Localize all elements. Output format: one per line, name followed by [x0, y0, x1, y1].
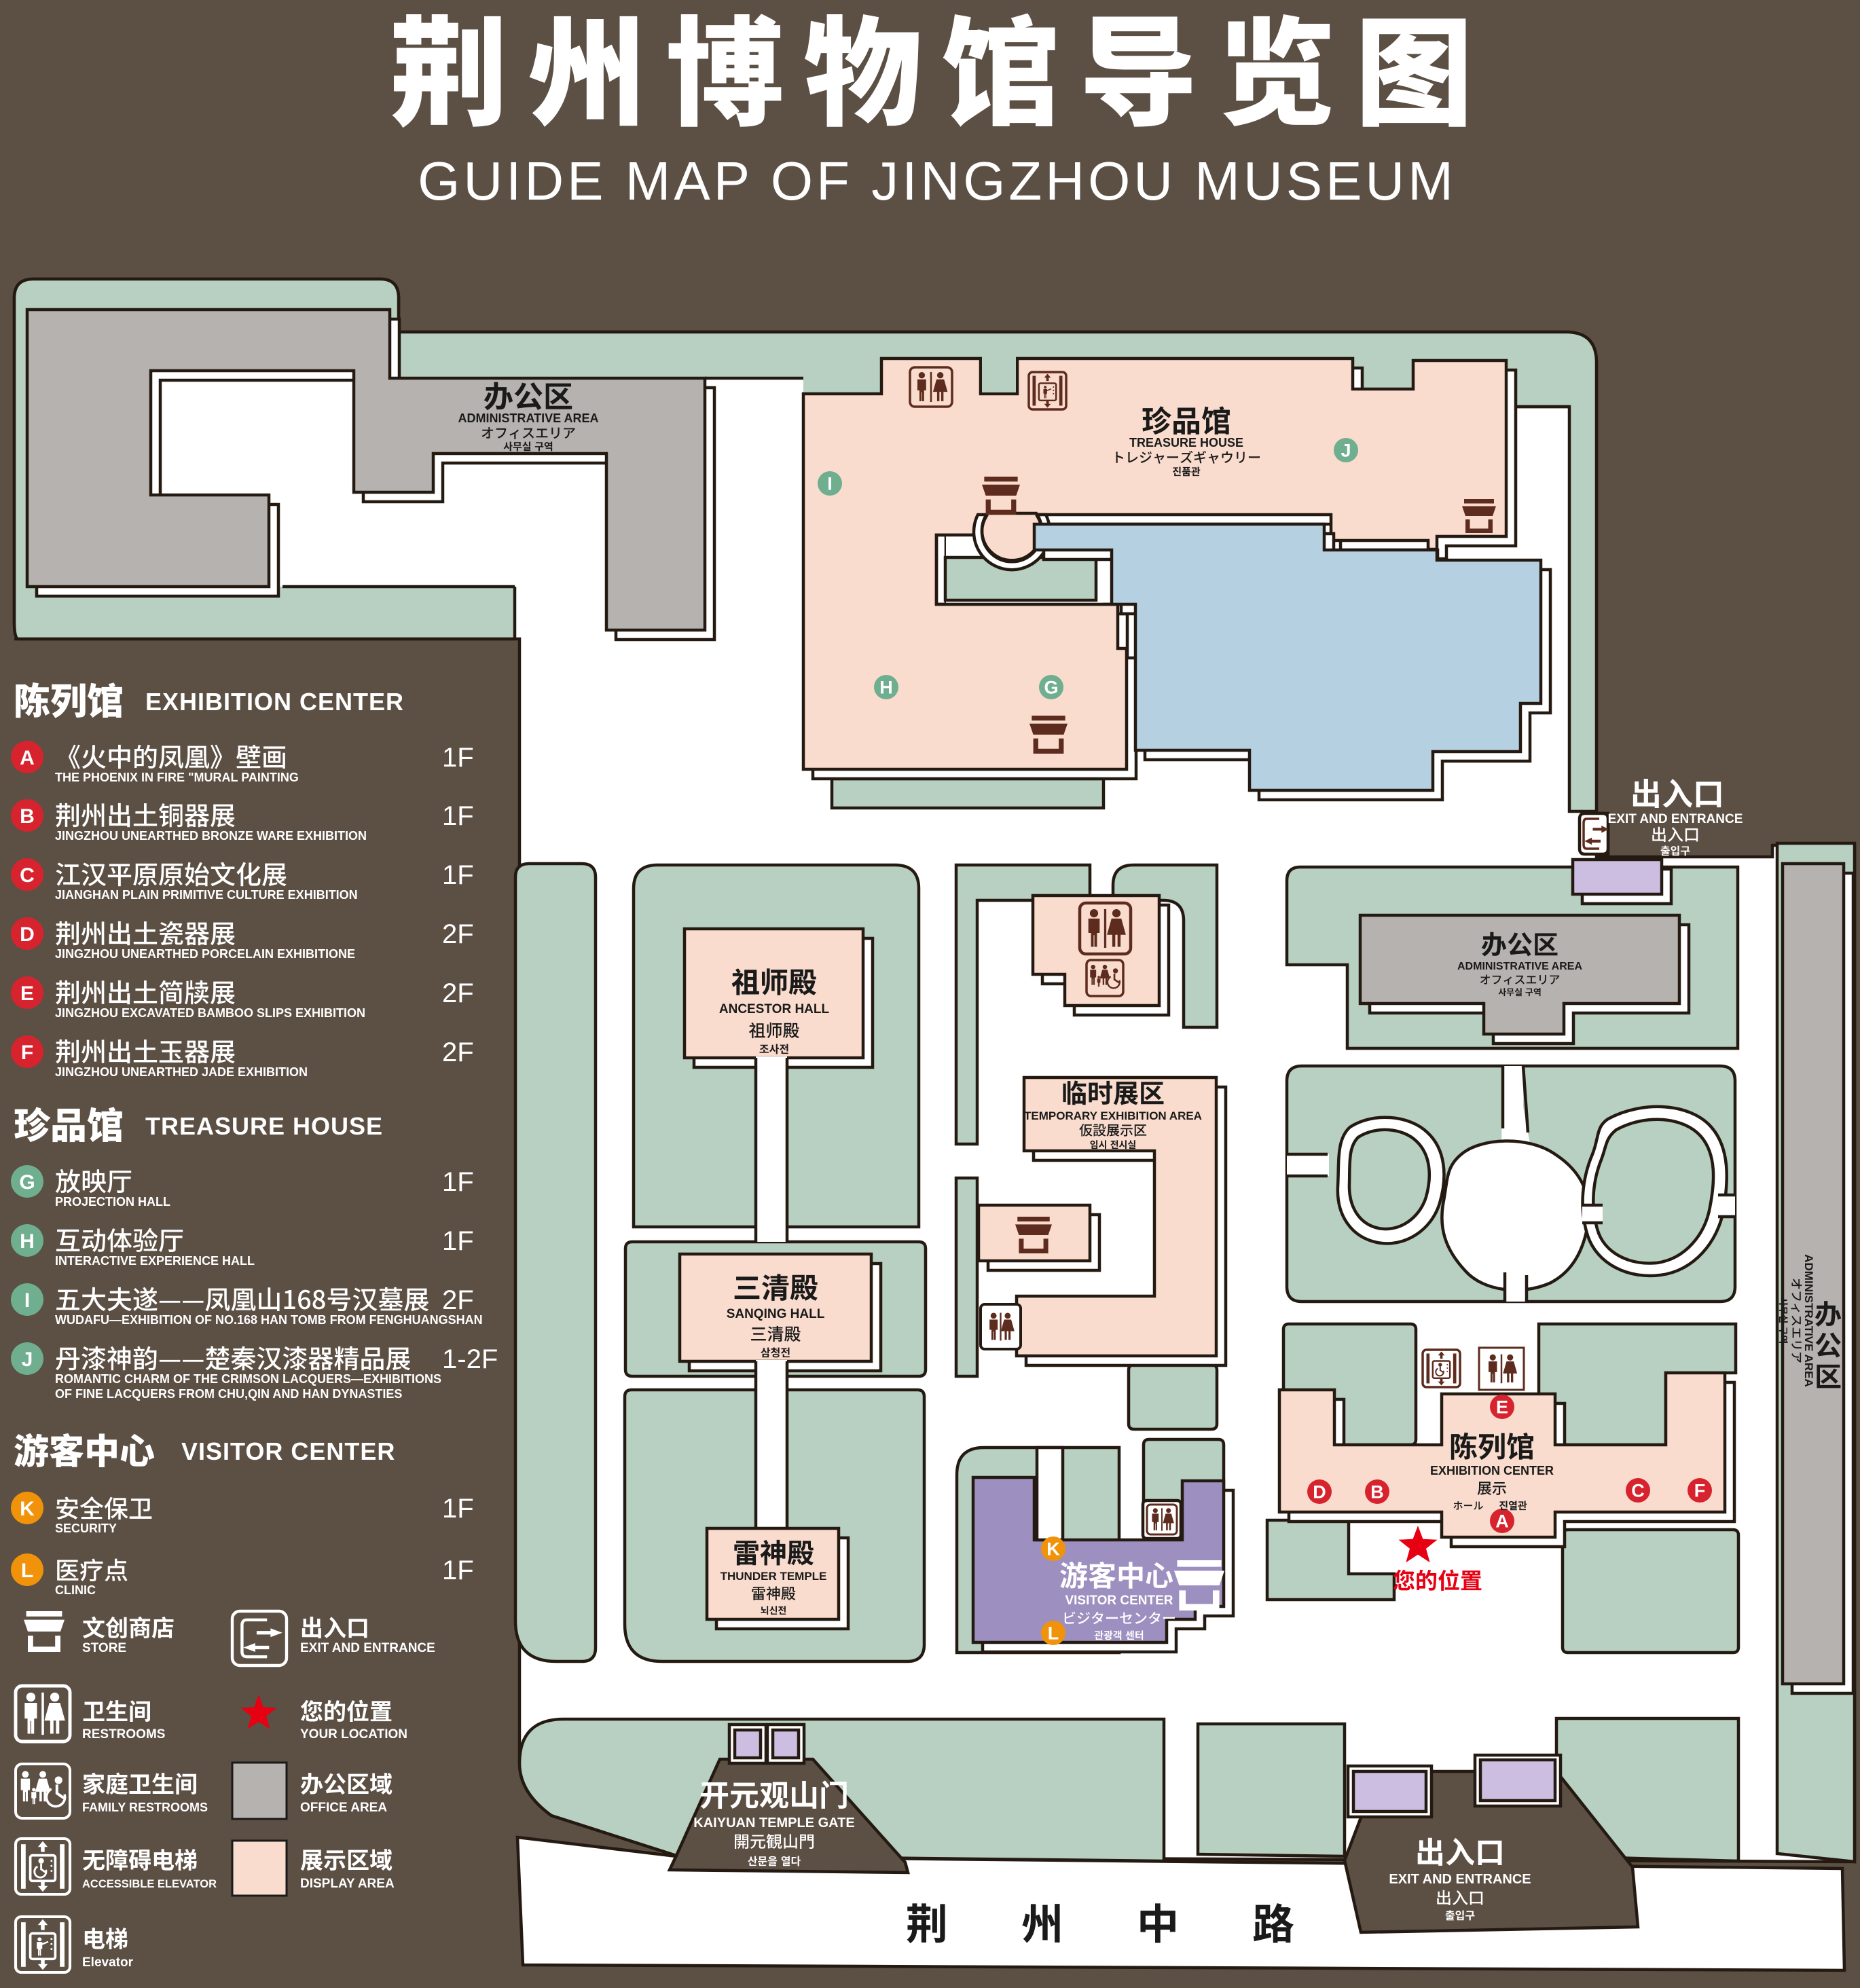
svg-text:B: B [20, 805, 35, 828]
svg-text:Elevator: Elevator [82, 1955, 134, 1970]
svg-text:H: H [20, 1230, 35, 1253]
svg-text:2F: 2F [442, 919, 474, 949]
svg-text:1F: 1F [442, 1556, 474, 1585]
svg-text:D: D [20, 923, 35, 946]
svg-text:F: F [21, 1042, 33, 1064]
svg-text:TEMPORARY EXHIBITION AREA: TEMPORARY EXHIBITION AREA [1024, 1109, 1202, 1122]
svg-text:1F: 1F [442, 743, 474, 773]
svg-text:C: C [1631, 1481, 1645, 1501]
svg-text:1F: 1F [442, 801, 474, 831]
svg-text:H: H [879, 678, 893, 698]
svg-text:TREASURE HOUSE: TREASURE HOUSE [145, 1112, 383, 1140]
svg-text:VISITOR CENTER: VISITOR CENTER [181, 1437, 395, 1465]
svg-text:2F: 2F [442, 1285, 474, 1315]
svg-text:INTERACTIVE EXPERIENCE HALL: INTERACTIVE EXPERIENCE HALL [55, 1254, 255, 1268]
svg-text:WUDAFU—EXHIBITION OF NO.168 HA: WUDAFU—EXHIBITION OF NO.168 HAN TOMB FRO… [55, 1313, 483, 1327]
svg-text:JINGZHOU EXCAVATED BAMBOO SLIP: JINGZHOU EXCAVATED BAMBOO SLIPS EXHIBITI… [55, 1006, 365, 1020]
svg-text:1-2F: 1-2F [442, 1344, 498, 1374]
svg-text:I: I [24, 1289, 30, 1312]
svg-text:L: L [21, 1560, 33, 1582]
svg-text:F: F [1694, 1481, 1706, 1501]
svg-text:SANQING HALL: SANQING HALL [727, 1307, 825, 1321]
svg-text:C: C [20, 864, 35, 887]
svg-text:G: G [19, 1171, 35, 1194]
svg-text:2F: 2F [442, 978, 474, 1008]
svg-text:B: B [1370, 1482, 1384, 1503]
svg-text:K: K [1046, 1539, 1060, 1560]
svg-text:A: A [20, 747, 35, 769]
svg-text:JINGZHOU UNEARTHED PORCELAIN E: JINGZHOU UNEARTHED PORCELAIN EXHIBITIONE [55, 947, 355, 961]
svg-text:JIANGHAN PLAIN PRIMITIVE CULTU: JIANGHAN PLAIN PRIMITIVE CULTURE EXHIBIT… [55, 888, 358, 902]
svg-text:1F: 1F [442, 1226, 474, 1256]
svg-text:RESTROOMS: RESTROOMS [82, 1727, 165, 1742]
svg-text:L: L [1048, 1623, 1059, 1644]
svg-text:EXHIBITION CENTER: EXHIBITION CENTER [1430, 1464, 1554, 1477]
svg-text:ACCESSIBLE ELEVATOR: ACCESSIBLE ELEVATOR [82, 1878, 217, 1890]
svg-text:K: K [20, 1498, 35, 1520]
svg-text:THUNDER TEMPLE: THUNDER TEMPLE [721, 1570, 827, 1583]
svg-text:ROMANTIC CHARM OF THE CRIMSON: ROMANTIC CHARM OF THE CRIMSON LACQUERS—E… [55, 1372, 441, 1386]
svg-text:ADMINISTRATIVE AREA: ADMINISTRATIVE AREA [458, 411, 599, 425]
svg-text:PROJECTION HALL: PROJECTION HALL [55, 1195, 170, 1209]
svg-text:I: I [827, 474, 833, 494]
svg-text:E: E [20, 982, 34, 1005]
svg-text:G: G [1044, 678, 1058, 698]
svg-text:J: J [22, 1348, 33, 1371]
svg-text:EXHIBITION CENTER: EXHIBITION CENTER [145, 688, 404, 716]
svg-text:ADMINISTRATIVE AREA: ADMINISTRATIVE AREA [1457, 961, 1582, 972]
svg-text:VISITOR CENTER: VISITOR CENTER [1065, 1594, 1173, 1608]
svg-text:EXIT AND ENTRANCE: EXIT AND ENTRANCE [1608, 812, 1743, 826]
svg-text:JINGZHOU UNEARTHED JADE EXHIBI: JINGZHOU UNEARTHED JADE EXHIBITION [55, 1065, 308, 1079]
svg-text:STORE: STORE [82, 1641, 126, 1655]
svg-text:ANCESTOR HALL: ANCESTOR HALL [719, 1002, 830, 1016]
svg-text:1F: 1F [442, 1167, 474, 1197]
svg-text:OFFICE AREA: OFFICE AREA [300, 1801, 387, 1815]
svg-text:CLINIC: CLINIC [55, 1583, 96, 1597]
svg-text:J: J [1341, 441, 1351, 461]
svg-text:EXIT AND ENTRANCE: EXIT AND ENTRANCE [1389, 1872, 1531, 1887]
svg-text:E: E [1496, 1397, 1508, 1418]
svg-text:KAIYUAN TEMPLE GATE: KAIYUAN TEMPLE GATE [693, 1816, 854, 1830]
svg-text:ADMINISTRATIVE AREA: ADMINISTRATIVE AREA [1802, 1254, 1815, 1387]
svg-text:SECURITY: SECURITY [55, 1522, 117, 1535]
svg-text:GUIDE MAP OF JINGZHOU MUSEUM: GUIDE MAP OF JINGZHOU MUSEUM [418, 151, 1457, 211]
svg-text:A: A [1495, 1511, 1509, 1532]
svg-text:DISPLAY AREA: DISPLAY AREA [300, 1877, 395, 1891]
svg-text:FAMILY RESTROOMS: FAMILY RESTROOMS [82, 1801, 208, 1814]
svg-text:1F: 1F [442, 860, 474, 890]
svg-text:1F: 1F [442, 1494, 474, 1524]
svg-text:D: D [1313, 1482, 1326, 1503]
svg-text:YOUR LOCATION: YOUR LOCATION [300, 1727, 407, 1742]
svg-text:2F: 2F [442, 1037, 474, 1067]
svg-text:THE PHOENIX IN FIRE "MURAL PAI: THE PHOENIX IN FIRE "MURAL PAINTING [55, 771, 299, 784]
svg-text:EXIT AND ENTRANCE: EXIT AND ENTRANCE [300, 1641, 435, 1655]
svg-text:TREASURE HOUSE: TREASURE HOUSE [1129, 436, 1243, 449]
svg-text:OF FINE LACQUERS FROM CHU,QIN: OF FINE LACQUERS FROM CHU,QIN AND HAN DY… [55, 1387, 402, 1401]
svg-text:JINGZHOU UNEARTHED BRONZE WARE: JINGZHOU UNEARTHED BRONZE WARE EXHIBITIO… [55, 829, 367, 843]
